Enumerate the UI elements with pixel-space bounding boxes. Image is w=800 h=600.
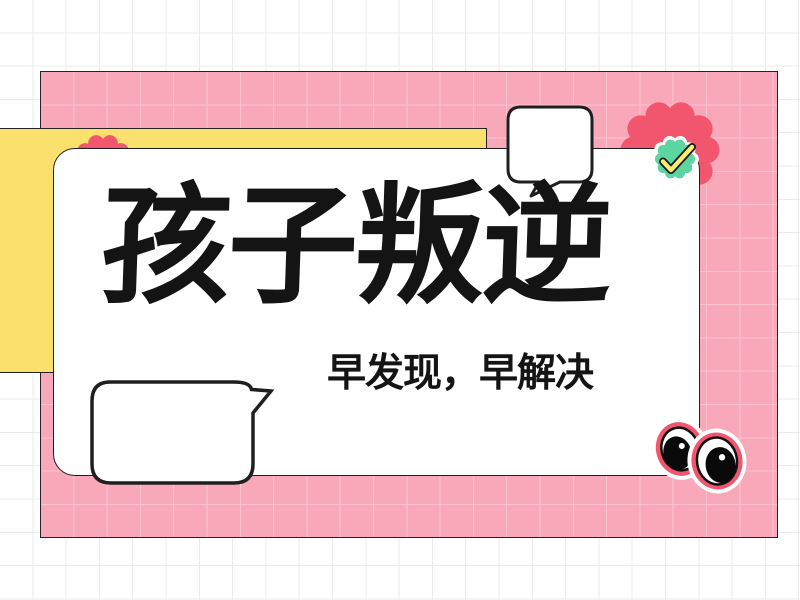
check-badge-icon	[651, 136, 699, 182]
speech-bubble-icon	[92, 382, 271, 483]
googly-eyes-icon	[645, 412, 750, 497]
poster-title: 孩子叛逆	[38, 181, 673, 311]
poster-subtitle: 早发现，早解决	[310, 353, 610, 396]
